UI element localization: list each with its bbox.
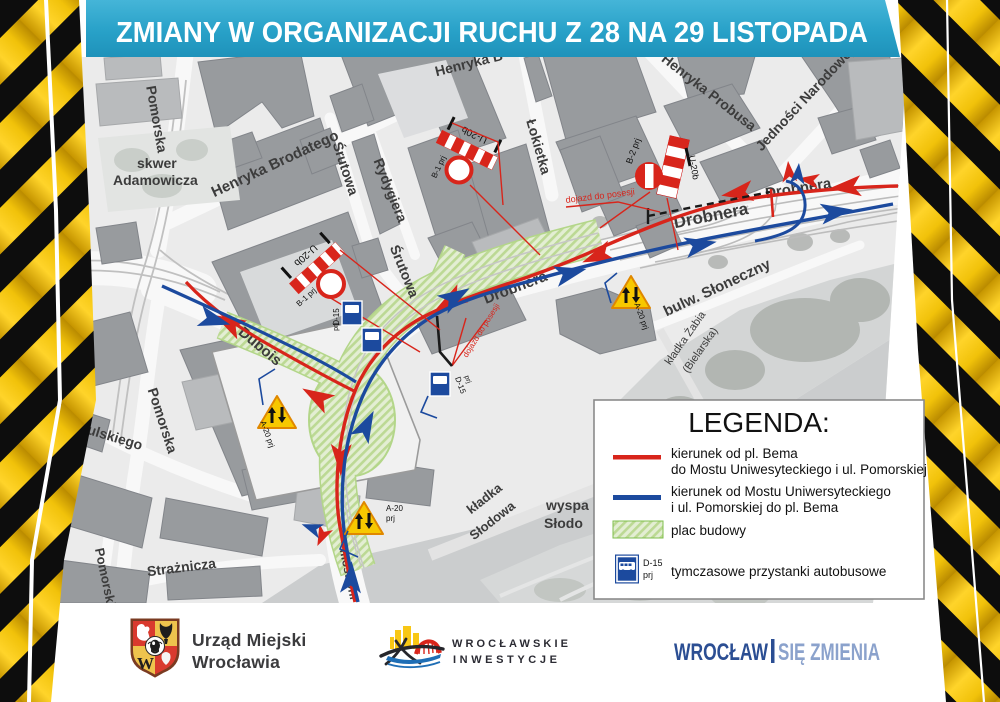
svg-text:prj: prj (386, 514, 395, 523)
svg-text:prj: prj (333, 323, 340, 331)
svg-text:wyspa: wyspa (545, 497, 589, 513)
svg-text:A-20: A-20 (386, 504, 403, 513)
svg-text:kierunek od pl. Bema: kierunek od pl. Bema (671, 446, 798, 461)
svg-text:SIĘ ZMIENIA: SIĘ ZMIENIA (778, 639, 880, 666)
svg-text:D-15: D-15 (643, 558, 663, 568)
svg-text:skwer: skwer (137, 155, 177, 171)
svg-text:prj: prj (643, 570, 653, 580)
svg-text:tymczasowe przystanki autobuso: tymczasowe przystanki autobusowe (671, 564, 886, 579)
svg-text:plac budowy: plac budowy (671, 523, 746, 538)
svg-text:ZMIANY W ORGANIZACJI RUCHU Z 2: ZMIANY W ORGANIZACJI RUCHU Z 28 NA 29 LI… (116, 17, 868, 49)
svg-text:D-15: D-15 (332, 308, 341, 326)
svg-text:Urząd Miejski: Urząd Miejski (192, 630, 306, 650)
svg-text:kierunek od Mostu Uniwersyteck: kierunek od Mostu Uniwersyteckiego (671, 484, 891, 499)
svg-text:WROCŁAWSKIE: WROCŁAWSKIE (452, 638, 571, 650)
svg-text:Wrocławia: Wrocławia (192, 652, 280, 672)
svg-text:LEGENDA:: LEGENDA: (688, 407, 830, 438)
svg-text:WROCŁAW: WROCŁAW (674, 639, 768, 666)
svg-text:INWESTYCJE: INWESTYCJE (453, 654, 561, 666)
svg-text:i ul. Pomorskiej do pl. Bema: i ul. Pomorskiej do pl. Bema (671, 500, 839, 515)
svg-text:do Mostu Uniwesyteckiego i ul.: do Mostu Uniwesyteckiego i ul. Pomorskie… (671, 462, 927, 477)
svg-text:Adamowicza: Adamowicza (113, 172, 198, 188)
svg-text:Słodo: Słodo (544, 515, 583, 531)
svg-text:W: W (137, 654, 154, 673)
